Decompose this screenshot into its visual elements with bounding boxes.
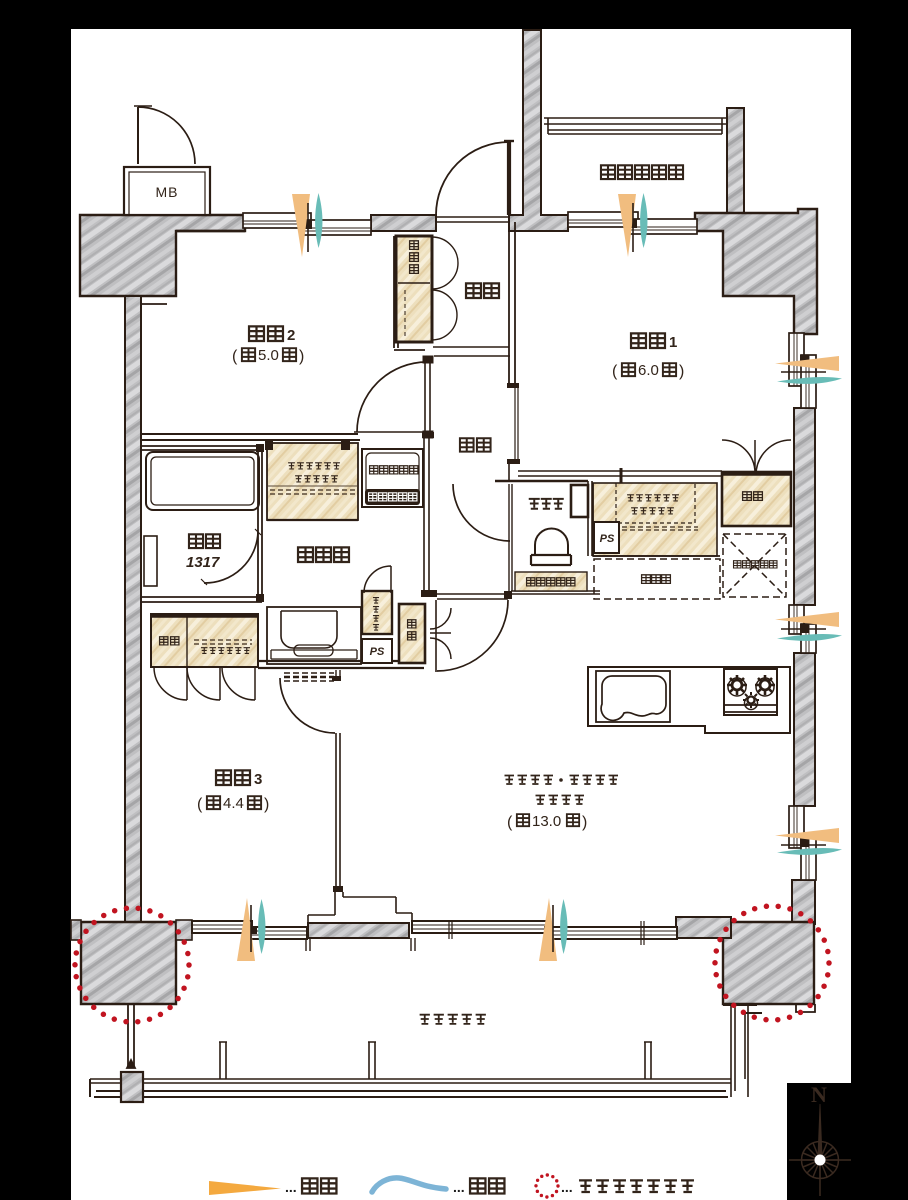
svg-text:...: ...: [285, 1179, 297, 1195]
svg-text:13.0: 13.0: [532, 813, 561, 830]
svg-text:): ): [582, 814, 587, 831]
svg-text:(: (: [507, 814, 513, 831]
svg-text:(: (: [612, 363, 618, 380]
svg-text:...: ...: [453, 1179, 465, 1195]
svg-text:6.0: 6.0: [638, 362, 659, 379]
svg-text:2: 2: [287, 327, 295, 344]
svg-text:5.0: 5.0: [258, 347, 279, 364]
svg-text:(: (: [232, 348, 238, 365]
svg-text:1317: 1317: [186, 554, 220, 571]
svg-text:(: (: [197, 796, 203, 813]
svg-text:): ): [299, 348, 304, 365]
svg-text:PS: PS: [600, 533, 615, 545]
svg-text:...: ...: [561, 1179, 573, 1195]
svg-text:4.4: 4.4: [223, 795, 244, 812]
svg-text:PS: PS: [370, 646, 385, 658]
svg-text:): ): [264, 796, 269, 813]
svg-text:1: 1: [669, 334, 677, 351]
svg-text:N: N: [811, 1082, 827, 1107]
svg-text:3: 3: [254, 771, 262, 788]
svg-text:): ): [679, 363, 684, 380]
svg-text:MB: MB: [156, 184, 179, 200]
